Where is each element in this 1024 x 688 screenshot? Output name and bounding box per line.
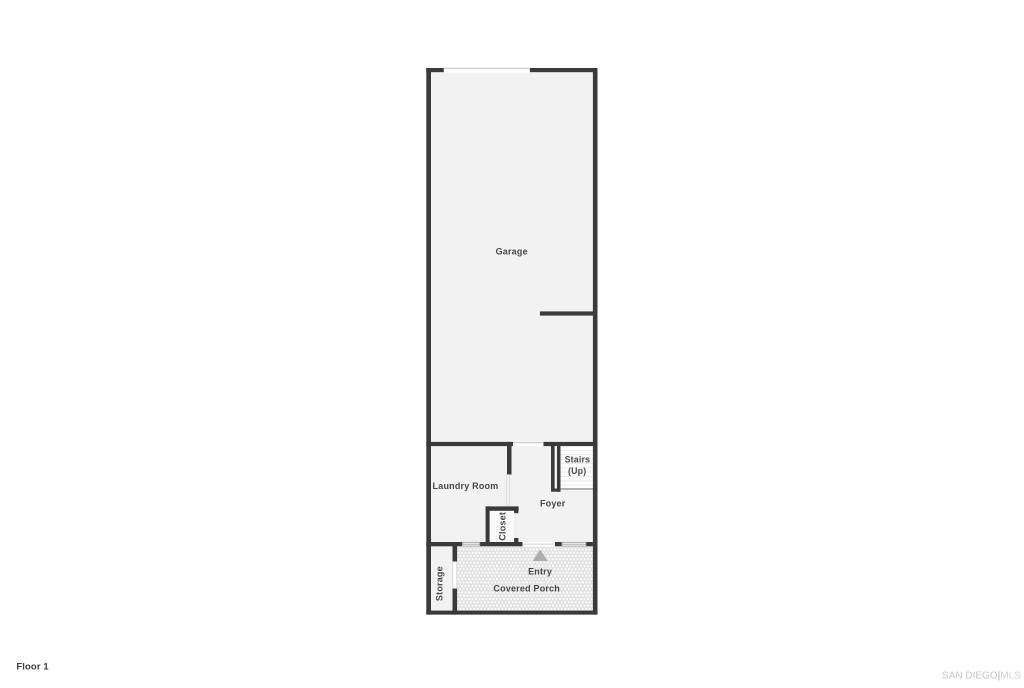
svg-text:Laundry Room: Laundry Room bbox=[433, 481, 499, 491]
svg-text:Garage: Garage bbox=[496, 246, 528, 256]
svg-text:Floor 1: Floor 1 bbox=[16, 661, 49, 672]
svg-text:Entry: Entry bbox=[528, 567, 552, 577]
svg-text:Stairs: Stairs bbox=[565, 455, 591, 465]
svg-text:SAN DIEGO|MLS: SAN DIEGO|MLS bbox=[942, 670, 1021, 681]
svg-text:Storage: Storage bbox=[435, 566, 445, 601]
svg-text:(Up): (Up) bbox=[568, 466, 586, 476]
svg-text:Closet: Closet bbox=[497, 512, 507, 541]
svg-text:Covered Porch: Covered Porch bbox=[493, 584, 560, 594]
svg-text:Foyer: Foyer bbox=[540, 498, 566, 508]
